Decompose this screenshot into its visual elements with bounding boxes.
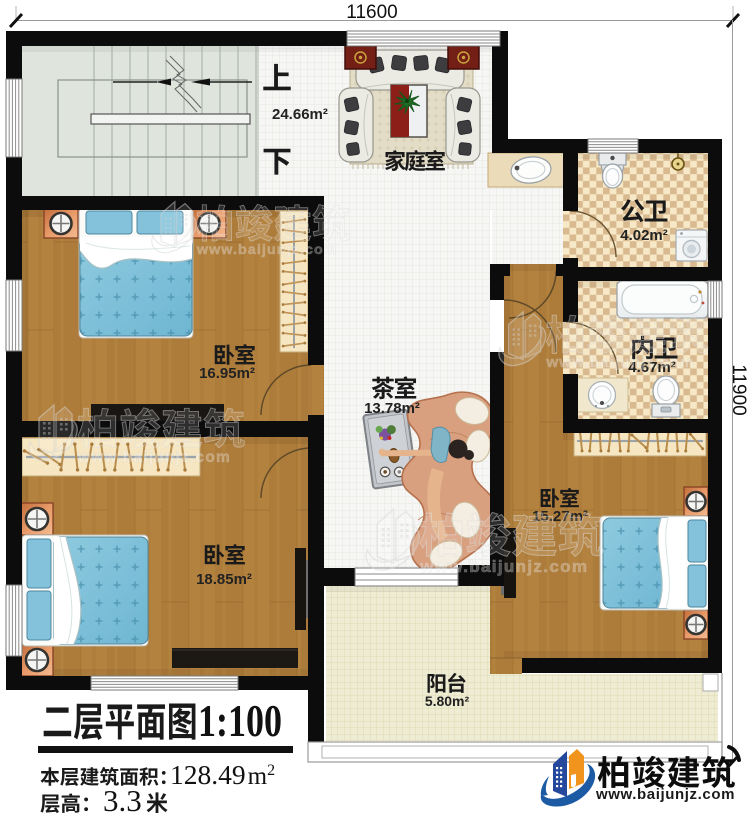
svg-text:www.baijunjz.com: www.baijunjz.com — [419, 557, 588, 576]
svg-text:128.49m2: 128.49m2 — [170, 759, 275, 790]
svg-text:www.baijunjz.com: www.baijunjz.com — [196, 242, 338, 258]
svg-text:11900: 11900 — [728, 364, 749, 415]
svg-text:3.3: 3.3 — [103, 783, 142, 817]
svg-text:16.95m²: 16.95m² — [199, 365, 255, 382]
svg-text:24.66m²: 24.66m² — [272, 106, 328, 123]
svg-text:www.baijunjz.com: www.baijunjz.com — [77, 449, 231, 466]
svg-text:1:100: 1:100 — [198, 696, 282, 746]
svg-text:11600: 11600 — [346, 2, 397, 23]
svg-text:13.78m²: 13.78m² — [364, 400, 420, 417]
svg-text:18.85m²: 18.85m² — [196, 571, 252, 588]
svg-text:5.80m²: 5.80m² — [425, 693, 470, 709]
svg-text:www.baijunjz.com: www.baijunjz.com — [545, 354, 694, 371]
svg-text:www.baijunjz.com: www.baijunjz.com — [595, 786, 735, 803]
svg-text:4.02m²: 4.02m² — [620, 227, 668, 244]
